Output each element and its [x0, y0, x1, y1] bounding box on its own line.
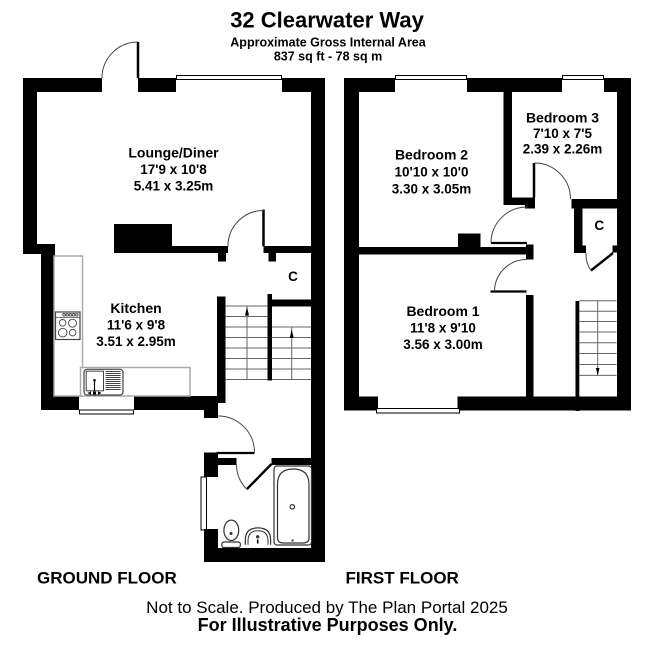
svg-text:C: C: [288, 269, 298, 284]
svg-text:Approximate Gross Internal Are: Approximate Gross Internal Area: [230, 36, 426, 50]
svg-text:Bedroom 3: Bedroom 3: [526, 110, 599, 126]
svg-text:Lounge/Diner: Lounge/Diner: [128, 145, 219, 161]
svg-text:GROUND FLOOR: GROUND FLOOR: [37, 569, 177, 588]
svg-text:FIRST FLOOR: FIRST FLOOR: [346, 569, 459, 588]
svg-text:10'10 x 10'0: 10'10 x 10'0: [395, 165, 469, 180]
svg-text:17'9 x 10'8: 17'9 x 10'8: [140, 162, 207, 177]
svg-text:3.30 x 3.05m: 3.30 x 3.05m: [392, 182, 472, 197]
svg-text:Bedroom 2: Bedroom 2: [395, 147, 468, 163]
svg-text:C: C: [594, 218, 604, 233]
svg-text:For Illustrative Purposes Only: For Illustrative Purposes Only.: [198, 615, 458, 635]
svg-text:2.39 x 2.26m: 2.39 x 2.26m: [523, 142, 603, 157]
svg-text:5.41 x 3.25m: 5.41 x 3.25m: [134, 179, 214, 194]
svg-text:837 sq ft - 78 sq m: 837 sq ft - 78 sq m: [274, 50, 382, 64]
svg-text:7'10 x 7'5: 7'10 x 7'5: [533, 126, 592, 141]
svg-text:11'6 x 9'8: 11'6 x 9'8: [107, 318, 166, 333]
svg-text:3.51 x 2.95m: 3.51 x 2.95m: [96, 334, 176, 349]
svg-text:Kitchen: Kitchen: [110, 300, 161, 316]
svg-text:11'8 x 9'10: 11'8 x 9'10: [410, 321, 476, 336]
svg-text:3.56 x 3.00m: 3.56 x 3.00m: [403, 337, 483, 352]
svg-text:32 Clearwater Way: 32 Clearwater Way: [230, 8, 424, 33]
svg-text:Bedroom 1: Bedroom 1: [406, 303, 479, 319]
